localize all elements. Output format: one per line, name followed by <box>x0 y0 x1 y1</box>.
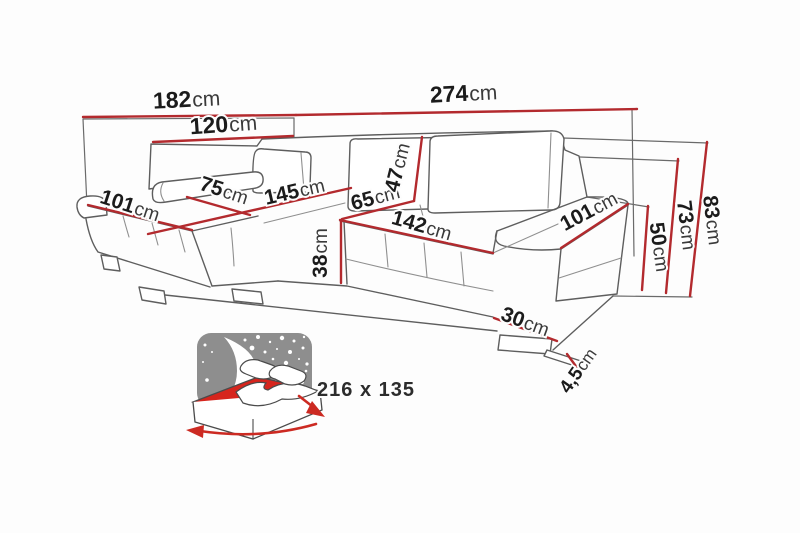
dim-label-4-5: 4,5cm <box>556 344 602 397</box>
dim-label-182: 182cm <box>152 84 221 113</box>
tufting-seams <box>385 234 464 286</box>
bed-size-label: 216 x 135 <box>317 379 415 401</box>
chaise-front-face <box>86 219 212 287</box>
arrowhead-left <box>186 425 204 438</box>
sleep-function-icon: 216 x 135 <box>186 333 415 439</box>
scaffold-line <box>580 157 679 161</box>
front-face-bottom <box>278 281 493 317</box>
base-bottom-edge <box>141 289 497 331</box>
dim-line-50 <box>642 206 648 290</box>
dim-label-274: 274cm <box>429 78 498 107</box>
scaffold-line <box>613 296 692 297</box>
sofa-dimension-diagram: 182cm 120cm 274cm 101cm 75cm 145cm 65cm … <box>0 0 800 533</box>
dim-label-50: 50cm <box>645 221 675 273</box>
dim-label-83: 83cm <box>698 194 727 246</box>
tufting-seam <box>231 228 234 266</box>
armrest-side-seam <box>559 258 621 278</box>
front-face-seam <box>346 259 493 291</box>
back-cushion-right <box>428 131 564 213</box>
diagram-canvas: 182cm 120cm 274cm 101cm 75cm 145cm 65cm … <box>0 0 800 533</box>
dim-line-274 <box>296 109 637 115</box>
scaffold-line <box>632 109 634 256</box>
dim-label-73: 73cm <box>672 199 701 251</box>
scaffold-line <box>83 119 87 206</box>
dim-label-120: 120cm <box>189 109 258 140</box>
chaise-side-face <box>192 216 278 286</box>
dim-label-38: 38cm <box>309 228 332 278</box>
right-side-bottom-edge <box>553 296 613 350</box>
corner-seam <box>344 221 347 284</box>
scaffold-line <box>563 138 708 143</box>
sofa-foot <box>139 287 166 304</box>
sofa-foot <box>232 289 263 304</box>
sofa-foot <box>101 255 120 271</box>
